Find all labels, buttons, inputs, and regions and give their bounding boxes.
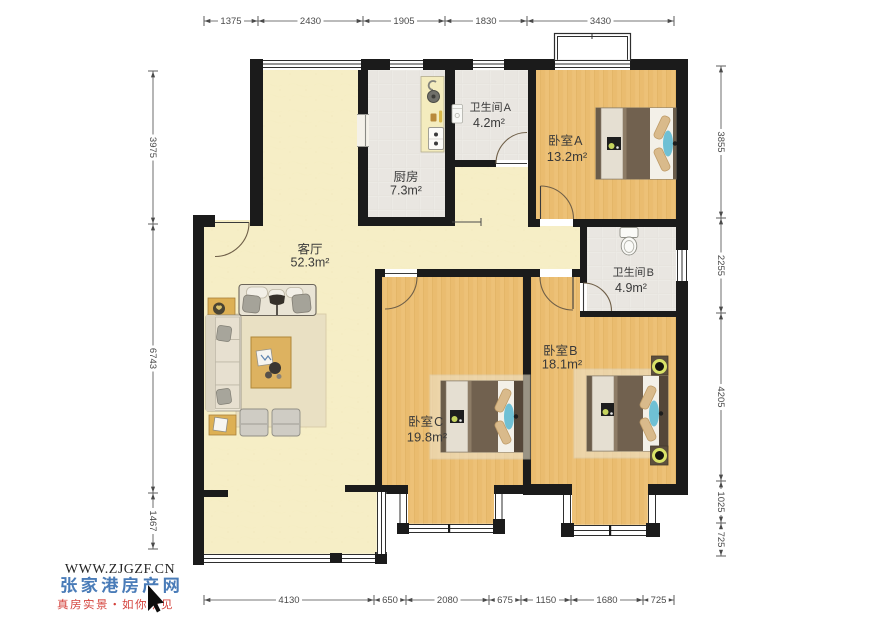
- svg-text:19.8m²: 19.8m²: [407, 430, 448, 445]
- svg-text:1150: 1150: [536, 595, 556, 606]
- svg-text:18.1m²: 18.1m²: [542, 357, 583, 372]
- svg-text:3430: 3430: [590, 16, 611, 27]
- svg-text:1905: 1905: [393, 16, 414, 27]
- svg-text:1375: 1375: [220, 16, 241, 27]
- svg-text:4130: 4130: [278, 595, 299, 606]
- svg-text:1680: 1680: [596, 595, 617, 606]
- svg-text:3975: 3975: [147, 137, 158, 158]
- svg-text:1830: 1830: [475, 16, 496, 27]
- svg-text:A: A: [574, 134, 583, 148]
- svg-text:2430: 2430: [300, 16, 321, 27]
- svg-text:4205: 4205: [715, 386, 726, 407]
- svg-text:725: 725: [715, 532, 726, 548]
- svg-text:52.3m²: 52.3m²: [291, 256, 330, 270]
- svg-text:2080: 2080: [437, 595, 458, 606]
- svg-text:7.3m²: 7.3m²: [390, 184, 422, 198]
- svg-text:2255: 2255: [715, 255, 726, 276]
- svg-text:C: C: [434, 415, 443, 429]
- svg-text:A: A: [504, 102, 512, 114]
- svg-text:1025: 1025: [715, 491, 726, 512]
- svg-text:675: 675: [497, 595, 513, 606]
- svg-text:650: 650: [382, 595, 398, 606]
- svg-text:WWW.ZJGZF.CN: WWW.ZJGZF.CN: [65, 562, 175, 577]
- svg-text:B: B: [647, 267, 654, 279]
- svg-text:6743: 6743: [147, 348, 158, 369]
- svg-text:725: 725: [651, 595, 667, 606]
- svg-text:13.2m²: 13.2m²: [547, 149, 588, 164]
- svg-text:1467: 1467: [147, 510, 158, 531]
- svg-text:3855: 3855: [715, 131, 726, 152]
- svg-text:4.9m²: 4.9m²: [615, 281, 647, 295]
- svg-text:4.2m²: 4.2m²: [473, 116, 505, 130]
